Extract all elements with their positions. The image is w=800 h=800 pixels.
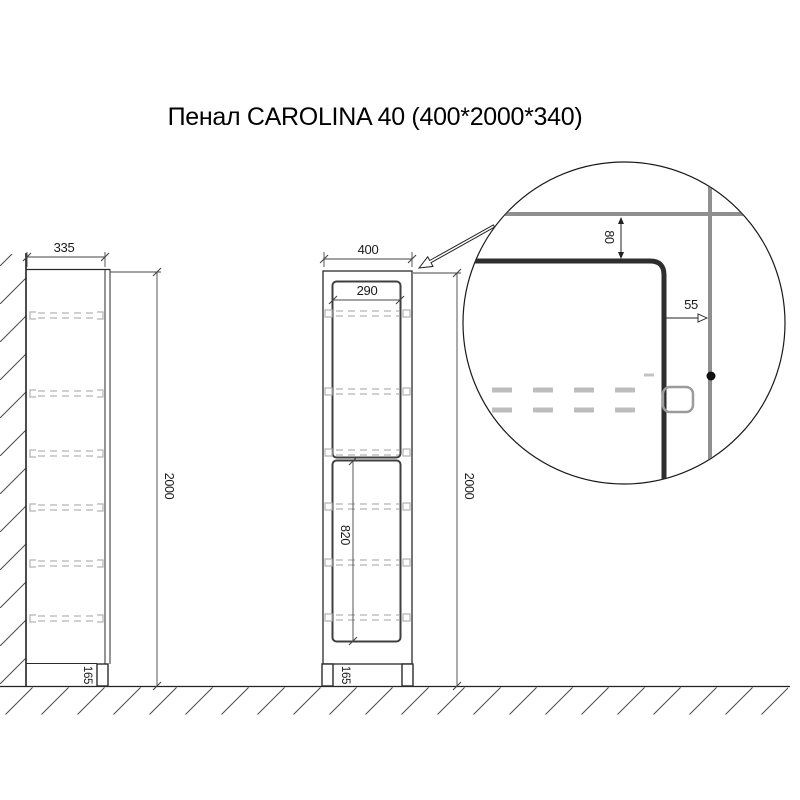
dim-label-2000-front: 2000 <box>462 466 476 506</box>
side-view-shelves <box>30 312 103 622</box>
wall-hatch <box>0 253 26 686</box>
front-view-feet <box>322 664 413 686</box>
page-title: Пенал CAROLINA 40 (400*2000*340) <box>75 103 675 132</box>
side-view-foot <box>97 664 108 686</box>
dim-label-55: 55 <box>678 297 704 312</box>
side-view-outline <box>26 269 110 664</box>
dimension-2000-side <box>110 268 161 690</box>
ground-hatch <box>0 687 790 715</box>
dim-label-2000-side: 2000 <box>162 466 176 506</box>
front-view-doors <box>333 282 401 642</box>
detail-circle <box>463 162 785 484</box>
dim-label-290: 290 <box>343 283 391 298</box>
dim-label-400: 400 <box>344 242 392 257</box>
dimension-820 <box>349 457 357 645</box>
dimension-2000-front <box>413 269 461 690</box>
front-view-outline <box>323 271 412 664</box>
dim-label-80: 80 <box>602 223 615 251</box>
dim-label-165-side: 165 <box>80 663 93 687</box>
dim-label-335: 335 <box>40 240 88 255</box>
front-view-shelves <box>325 310 410 621</box>
dim-label-820: 820 <box>338 520 352 550</box>
dim-label-165-front: 165 <box>338 663 351 687</box>
technical-drawing-page: Пенал CAROLINA 40 (400*2000*340) 335 200… <box>0 0 800 800</box>
